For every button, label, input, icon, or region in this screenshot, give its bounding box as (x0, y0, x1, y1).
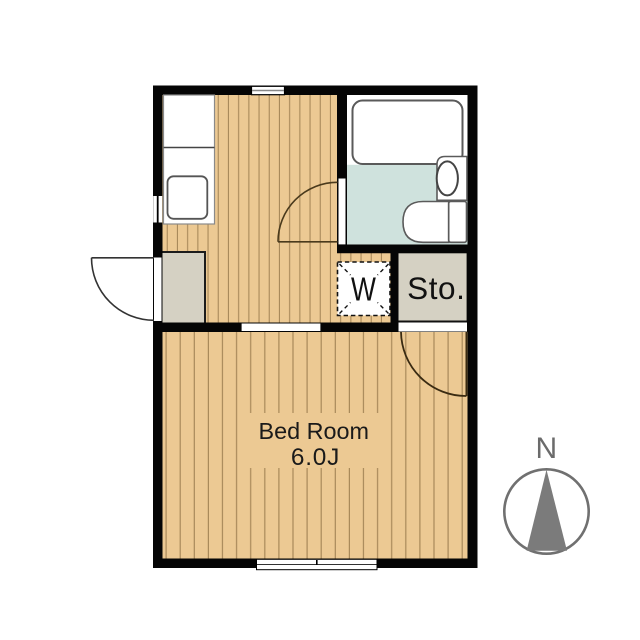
svg-text:N: N (535, 432, 557, 465)
svg-text:Sto.: Sto. (407, 270, 465, 306)
svg-text:W: W (351, 272, 377, 308)
svg-text:6.0J: 6.0J (291, 444, 340, 471)
svg-text:Bed Room: Bed Room (259, 418, 370, 444)
